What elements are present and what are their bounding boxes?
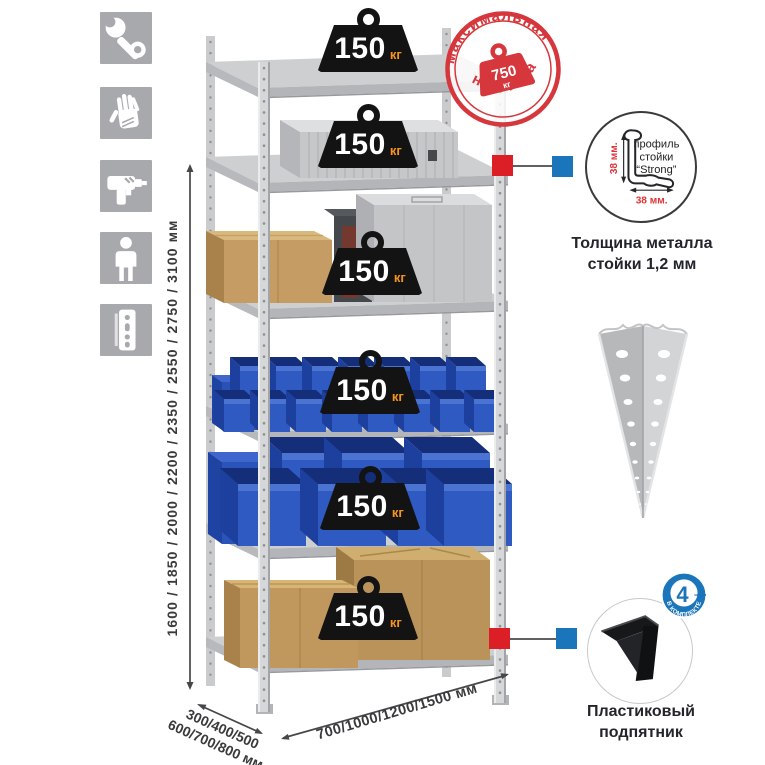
load-unit: кг	[390, 615, 402, 630]
profile-label-1: профиль	[633, 139, 679, 151]
load-value: 150	[336, 374, 388, 408]
load-value: 150	[334, 128, 386, 162]
height-dimension-label: 1600 / 1850 / 2000 / 2200 / 2350 / 2550 …	[164, 148, 180, 708]
load-unit: кг	[392, 505, 404, 520]
quantity-units: штуки	[694, 592, 707, 597]
profile-dim-horizontal: 38 мм.	[636, 196, 668, 207]
shelf-load-badge: 150кг	[320, 350, 420, 414]
quantity-badge: 4 штуки В КОМПЛЕКТЕ	[660, 571, 708, 619]
product-infographic: 150кг 150кг 150кг 150кг 150кг 150кг	[0, 0, 765, 765]
profile-caption: Толщина металла стойки 1,2 мм	[557, 233, 727, 275]
connector-top	[492, 155, 573, 177]
profile-label-2: стойки	[639, 151, 673, 163]
load-value: 150	[336, 490, 388, 524]
profile-caption-line-1: Толщина металла	[557, 233, 727, 254]
angle-post-image	[593, 312, 693, 524]
load-value: 150	[334, 32, 386, 66]
foot-caption-line-1: Пластиковый	[556, 701, 726, 722]
blue-marker-bottom	[556, 628, 577, 649]
plastic-foot-image	[601, 616, 658, 681]
blue-marker-top	[552, 156, 573, 177]
connector-bottom	[489, 628, 577, 649]
load-unit: кг	[390, 47, 402, 62]
load-unit: кг	[394, 270, 406, 285]
profile-label-3: “Strong”	[636, 164, 676, 176]
load-unit: кг	[392, 389, 404, 404]
load-unit: кг	[390, 143, 402, 158]
shelf-load-badge: 150кг	[318, 8, 418, 72]
foot-caption-line-2: подпятник	[556, 722, 726, 743]
shelf-load-badge: 150кг	[318, 576, 418, 640]
red-marker-bottom	[489, 628, 510, 649]
shelf-load-badge: 150кг	[322, 231, 422, 295]
red-marker-top	[492, 155, 513, 176]
quantity-value: 4	[676, 582, 689, 607]
shelf-load-badge: 150кг	[318, 104, 418, 168]
shelf-load-badge: 150кг	[320, 466, 420, 530]
post-profile-detail: 38 мм. 38 мм. профиль стойки “Strong”	[585, 111, 697, 223]
load-value: 150	[338, 255, 390, 289]
max-load-stamp: максимальная нагрузка 750 кг	[441, 7, 565, 131]
foot-caption: Пластиковый подпятник	[556, 701, 726, 743]
load-value: 150	[334, 600, 386, 634]
profile-caption-line-2: стойки 1,2 мм	[557, 254, 727, 275]
profile-dim-vertical: 38 мм.	[609, 142, 620, 174]
